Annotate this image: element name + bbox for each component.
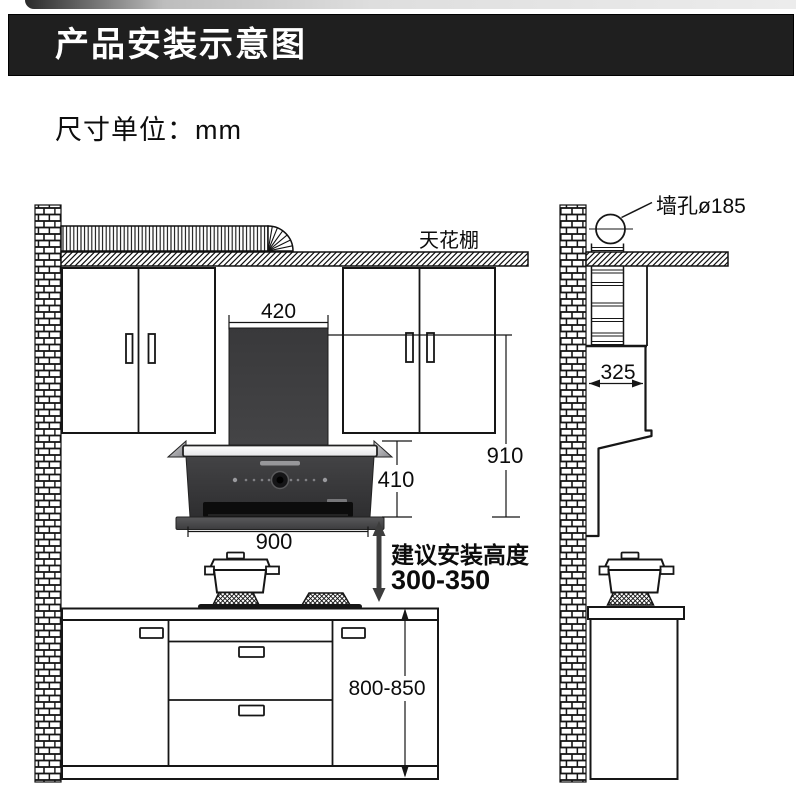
pot-side xyxy=(600,553,674,606)
wall-hole-leader xyxy=(622,203,653,218)
drawer-handle xyxy=(239,647,264,657)
dim-325-label: 325 xyxy=(600,361,635,384)
pot-front xyxy=(205,553,279,606)
left-brick-wall xyxy=(35,205,61,782)
ceiling-band-right xyxy=(586,252,728,266)
hood-model-text xyxy=(327,499,347,503)
install-height-arrow xyxy=(373,521,386,602)
hood-base-bar xyxy=(176,517,384,530)
ceiling-band-left xyxy=(61,252,528,266)
hood-chimney xyxy=(229,328,328,445)
drawer-handle xyxy=(239,706,264,716)
installation-diagram-page: 产品安装示意图 尺寸单位：mm xyxy=(0,0,800,800)
dim-900-label: 900 xyxy=(256,529,293,554)
upper-cabinet-left xyxy=(62,268,215,433)
exhaust-duct-horizontal xyxy=(61,226,293,251)
countertop-front xyxy=(62,609,438,621)
upper-cabinet-right xyxy=(343,268,495,433)
kick-plate xyxy=(62,766,438,779)
dim-910-label: 910 xyxy=(487,443,524,468)
install-height-range: 300-350 xyxy=(391,565,490,595)
burner-trivet xyxy=(302,593,350,605)
dim-420-label: 420 xyxy=(261,300,296,323)
countertop-side xyxy=(588,607,684,619)
base-cabinet-side xyxy=(591,619,678,779)
cabinet-handle xyxy=(140,628,163,638)
ceiling-label: 天花棚 xyxy=(419,229,479,252)
right-brick-wall xyxy=(560,205,586,782)
dim-800-850-label: 800-850 xyxy=(348,677,425,700)
dim-410-label: 410 xyxy=(378,467,415,492)
cabinet-handle xyxy=(342,628,365,638)
hood-logo xyxy=(260,461,300,466)
hood-top-strip xyxy=(183,446,377,457)
dim-total-height xyxy=(492,335,520,517)
wall-hole-label: 墙孔ø185 xyxy=(656,195,746,218)
diagram-canvas: 天花棚 xyxy=(0,0,800,800)
